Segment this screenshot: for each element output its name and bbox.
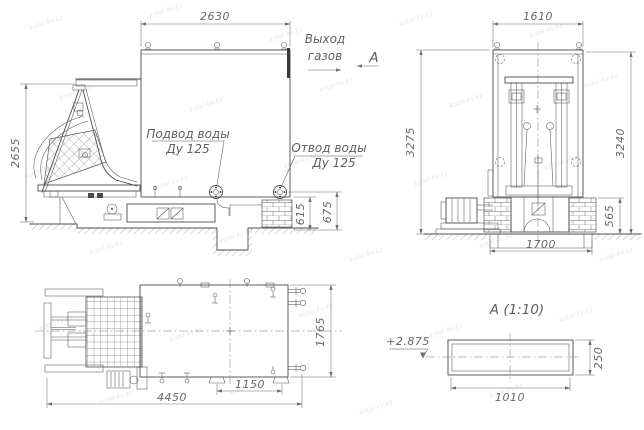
watermark-text: kotel-kv.kz xyxy=(428,321,464,340)
label-water-inlet-line2: Ду 125 xyxy=(165,142,209,156)
eyebolt-icon xyxy=(145,42,287,49)
watermark-text: kotel-kv.kz xyxy=(268,25,304,44)
dim-1150: 1150 xyxy=(235,378,265,391)
dim-250: 250 xyxy=(592,347,605,370)
dim-3240: 3240 xyxy=(614,128,627,158)
grate-grid xyxy=(86,297,142,367)
grate-mesh xyxy=(44,130,106,184)
watermark-text: kotel-kv.kz xyxy=(358,398,394,417)
label-gas-outlet-line1: Выход xyxy=(305,32,345,46)
section-letter: А xyxy=(368,50,378,66)
watermark-text: kotel-kv.kz xyxy=(413,169,449,188)
side-view: 2630 2655 615 675 Подвод воды Ду 125 Отв… xyxy=(9,10,379,256)
brick-pedestal xyxy=(262,200,292,227)
base-frame xyxy=(127,199,292,227)
technical-drawing: kotel-kv.kz kotel-kv.kz kotel-kv.kz kote… xyxy=(0,0,644,430)
dim-1610: 1610 xyxy=(523,10,553,23)
label-water-outlet-line2: Ду 125 xyxy=(311,156,355,170)
watermark-text: kotel-kv.kz xyxy=(88,238,124,257)
watermark-text: kotel-kv.kz xyxy=(558,305,594,324)
eyebolt-icon xyxy=(576,42,581,47)
watermark-text: kotel-kv.kz xyxy=(28,13,64,32)
pusher-mechanism xyxy=(44,289,142,372)
dim-1765: 1765 xyxy=(314,317,327,347)
plan-view: 1765 1150 4450 xyxy=(35,279,342,409)
drain-elbow xyxy=(217,199,229,216)
brick-pedestal xyxy=(569,198,596,232)
eyebolt-icon xyxy=(178,279,183,284)
watermark-text: kotel-kv.kz xyxy=(348,245,384,264)
label-water-inlet-line1: Подвод воды xyxy=(146,127,229,141)
fuel-loader xyxy=(34,79,141,224)
watermark-text: kotel-kv.kz xyxy=(38,313,74,332)
anchor-bolts xyxy=(145,287,276,383)
section-arrow: А xyxy=(357,50,379,66)
dim-675: 675 xyxy=(321,201,334,224)
watermark-text: kotel-kv.kz xyxy=(153,173,189,192)
watermark-text: kotel-kv.kz xyxy=(318,75,354,94)
dim-3275: 3275 xyxy=(404,127,417,157)
watermark-text: kotel-kv.kz xyxy=(148,1,184,20)
water-inlet-flange xyxy=(210,186,223,199)
level-arrow-icon xyxy=(420,353,426,359)
support-foot xyxy=(209,377,225,383)
dim-615: 615 xyxy=(294,203,307,226)
brick-pedestal xyxy=(484,198,511,232)
dim-1700: 1700 xyxy=(526,238,556,251)
watermark-text: kotel-kv.kz xyxy=(448,91,484,110)
watermark-text: kotel-kv.kz xyxy=(398,9,434,28)
inner-frame xyxy=(488,77,573,204)
watermark-text: kotel-kv.kz xyxy=(583,71,619,90)
eyebolt-icon xyxy=(245,279,250,284)
dim-565: 565 xyxy=(603,205,616,228)
dim-1010: 1010 xyxy=(495,391,525,404)
callout-gas-outlet: Выход газов xyxy=(305,32,345,70)
dim-2630: 2630 xyxy=(200,10,230,23)
water-outlet-flange xyxy=(274,186,287,199)
dim-2655: 2655 xyxy=(9,138,22,168)
ground-hatch xyxy=(30,224,318,256)
front-foundation xyxy=(484,197,596,232)
furnace-body-side xyxy=(141,50,290,197)
dimensions-front: 1610 3275 3240 565 1700 xyxy=(404,10,636,255)
eyebolt-icon xyxy=(494,42,499,47)
watermark-text: kotel-kv.kz xyxy=(168,325,204,344)
section-title: А (1:10) xyxy=(489,302,544,318)
callout-water-inlet: Подвод воды Ду 125 xyxy=(146,127,229,185)
label-water-outlet-line1: Отвод воды xyxy=(291,141,366,155)
label-gas-outlet-line2: газов xyxy=(308,49,342,63)
ash-arch xyxy=(524,219,550,232)
dim-4450: 4450 xyxy=(157,391,187,404)
gas-outlet-opening xyxy=(287,48,290,78)
drawing-sheet: kotel-kv.kz kotel-kv.kz kotel-kv.kz kote… xyxy=(0,0,644,430)
dimensions-section: 1010 250 xyxy=(451,340,605,404)
watermark-text: kotel-kv.kz xyxy=(188,95,224,114)
level-mark: +2.875 xyxy=(386,335,430,359)
duct-outer xyxy=(448,340,573,375)
watermark-text: kotel-kv.kz xyxy=(598,245,634,264)
level-value: +2.875 xyxy=(386,335,430,348)
pipe-stubs xyxy=(288,287,306,372)
duct-inner xyxy=(452,344,569,371)
support-foot xyxy=(273,377,289,383)
front-view: 1610 3275 3240 565 1700 xyxy=(404,10,641,255)
drive-motor xyxy=(107,367,147,389)
watermark-text: kotel-kv.kz xyxy=(543,153,579,172)
